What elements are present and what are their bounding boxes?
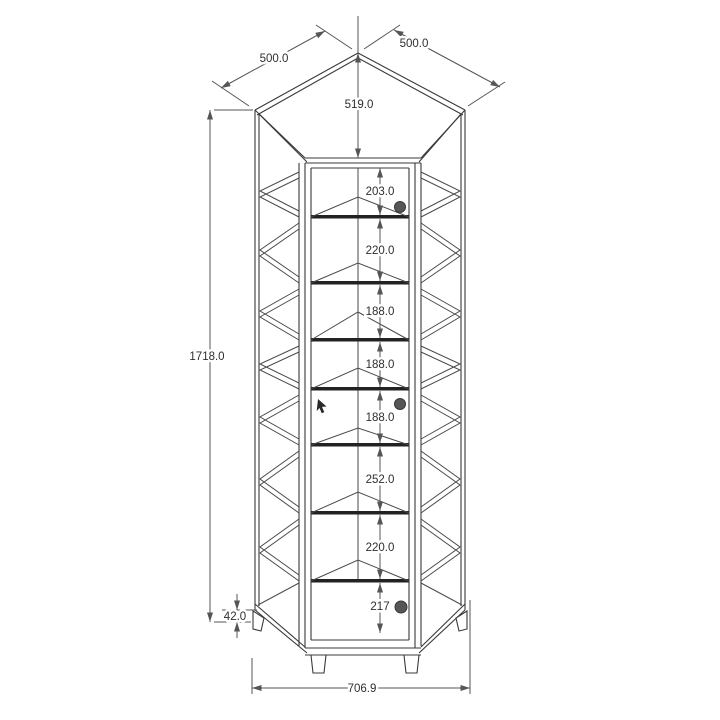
dim-label-side-width-right: 500.0 (400, 38, 429, 50)
dim-depth-to-corner: 519.0 (345, 16, 374, 158)
top-door-knob (395, 202, 406, 213)
cabinet-outline (255, 53, 465, 655)
door-knobs (395, 202, 408, 614)
dim-shelf-chain: 203.0 220.0 188.0 188.0 188.0 252.0 220.… (366, 168, 395, 633)
technical-drawing-canvas: 1718.0 42.0 500.0 500.0 519.0 (0, 0, 720, 720)
dim-label-shelf-spacing-7: 220.0 (366, 542, 395, 554)
right-corner-foot (456, 611, 467, 631)
dim-overall-height: 1718.0 (189, 110, 253, 622)
dim-label-depth-to-corner: 519.0 (345, 99, 374, 111)
corner-cabinet-drawing: 1718.0 42.0 500.0 500.0 519.0 (0, 0, 720, 720)
front-right-foot (404, 655, 419, 673)
mouse-cursor-icon (317, 399, 327, 413)
dim-label-overall-width: 706.9 (348, 683, 377, 695)
dim-label-shelf-spacing-4: 188.0 (366, 359, 395, 371)
shelf-lines (311, 215, 409, 583)
dim-label-overall-height: 1718.0 (189, 351, 224, 363)
dim-label-shelf-spacing-6: 252.0 (366, 474, 395, 486)
dim-foot-height: 42.0 (222, 594, 257, 638)
front-left-foot (311, 655, 326, 673)
dim-label-shelf-spacing-5: 188.0 (366, 412, 395, 424)
feet (253, 611, 467, 673)
dim-side-width-left: 500.0 (212, 25, 352, 106)
left-corner-foot (253, 611, 264, 631)
dim-label-side-width-left: 500.0 (260, 53, 289, 65)
dim-label-shelf-spacing-1: 203.0 (366, 186, 395, 198)
middle-door-knob (395, 399, 406, 410)
dim-label-shelf-spacing-3: 188.0 (366, 306, 395, 318)
bottom-door-knob (395, 601, 407, 613)
dim-label-foot-height: 42.0 (224, 611, 246, 623)
dim-label-shelf-spacing-8: 217 (370, 601, 389, 613)
dim-label-shelf-spacing-2: 220.0 (366, 245, 395, 257)
